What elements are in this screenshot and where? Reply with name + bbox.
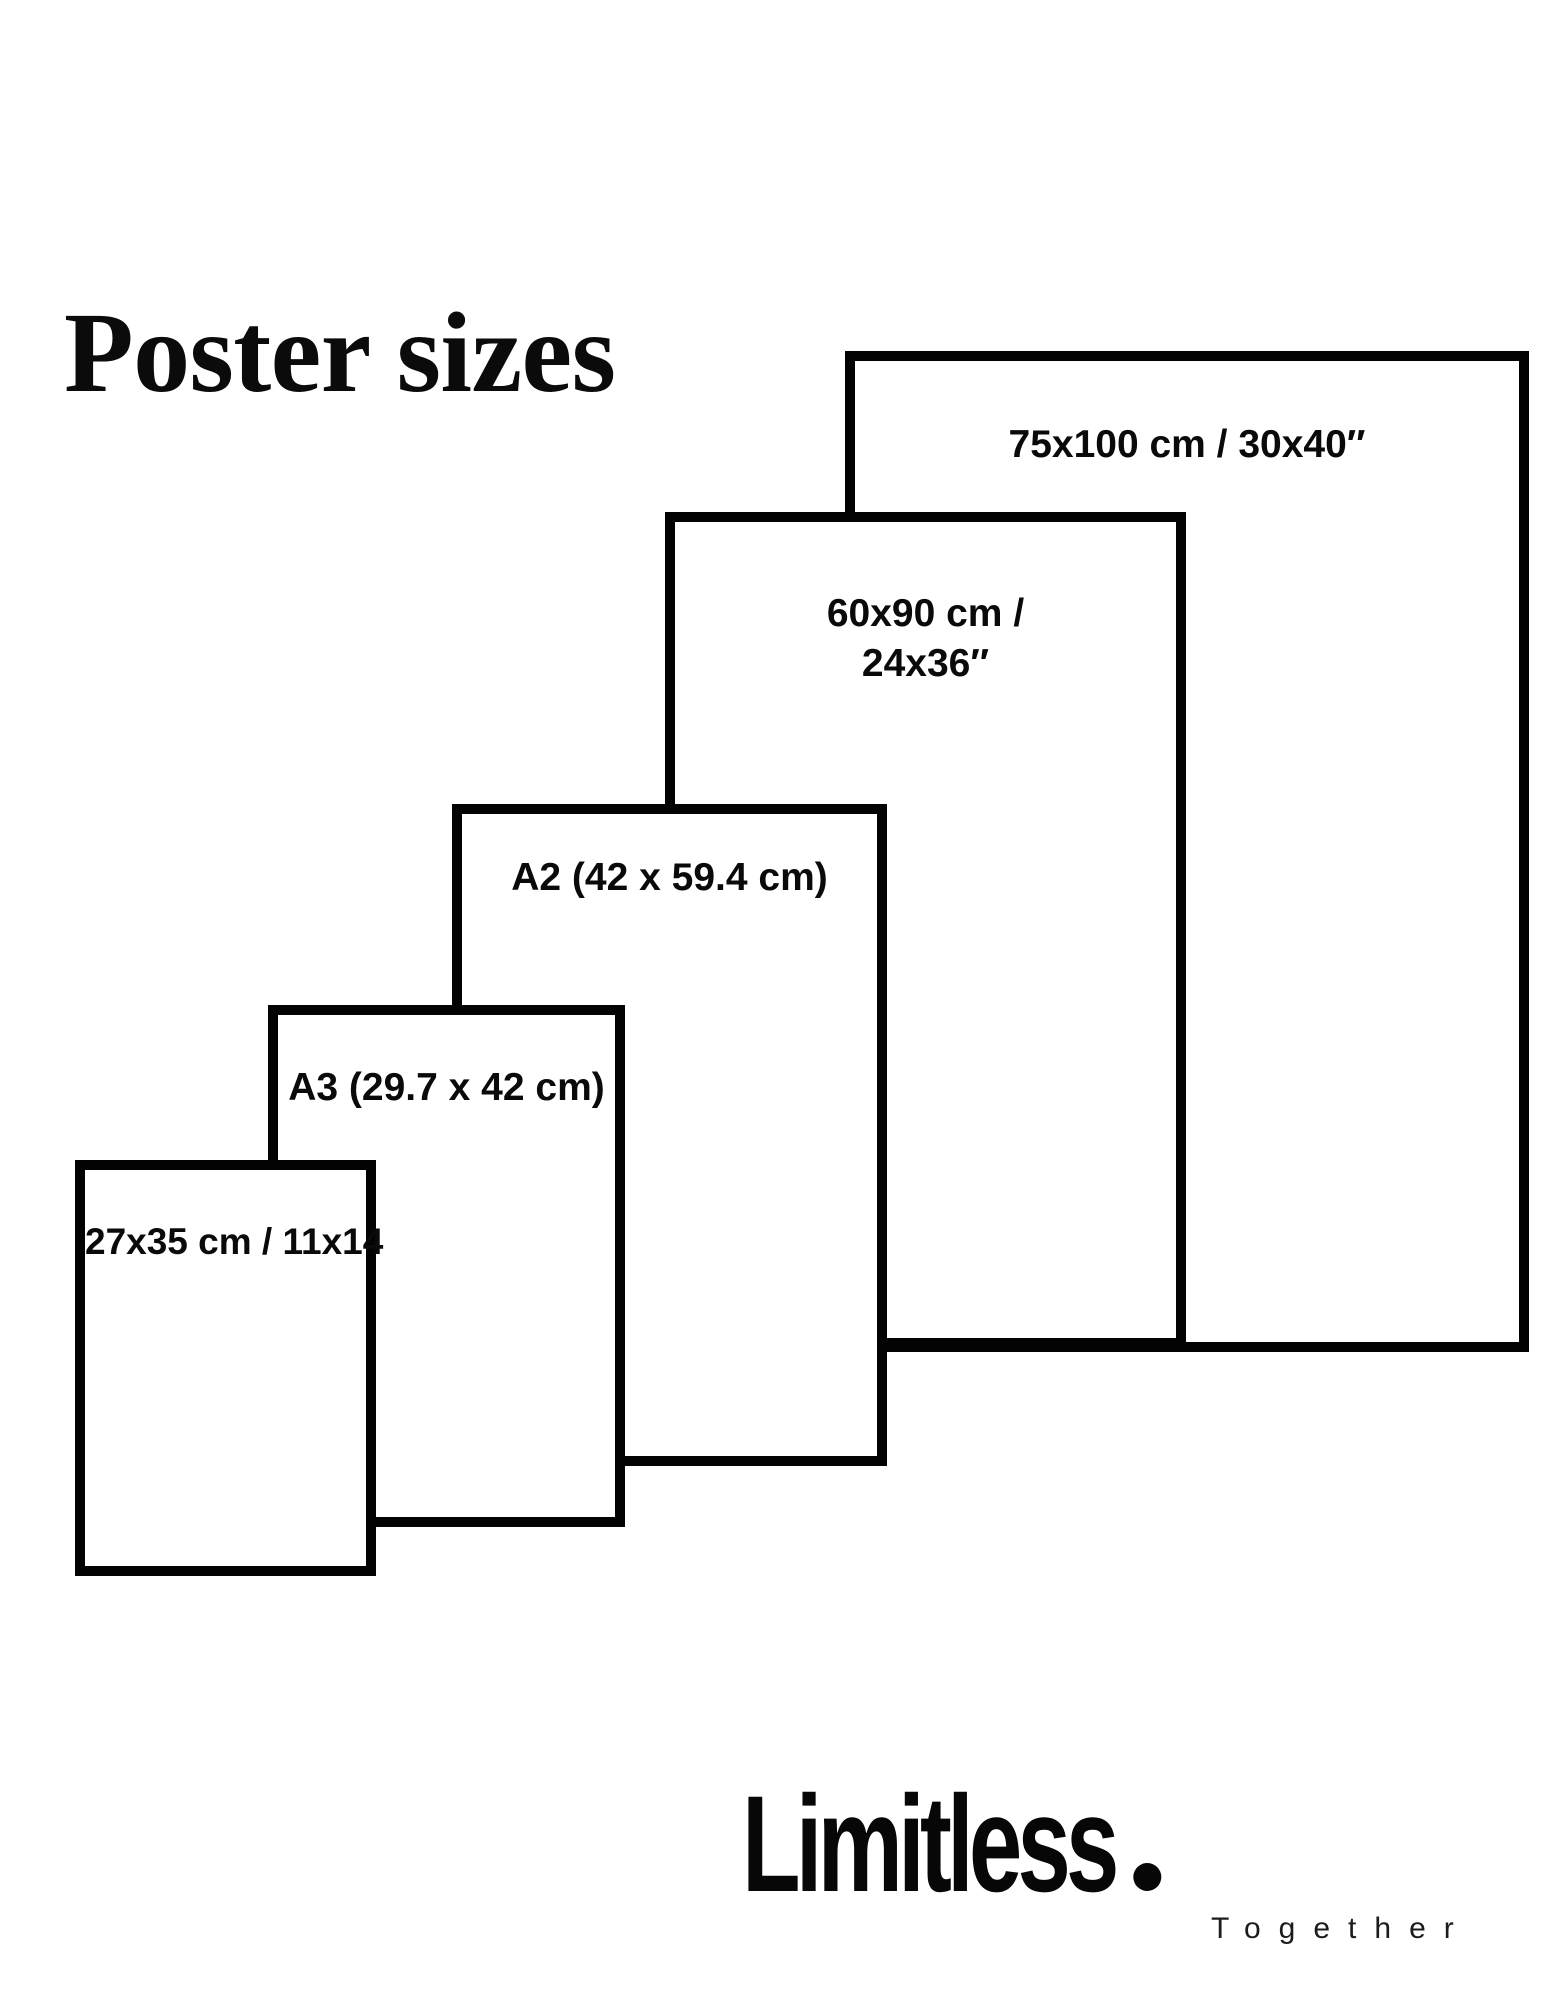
logo-period-dot	[1133, 1863, 1161, 1891]
brand-logo: Limitless	[742, 1776, 1161, 1913]
poster-rect-27x35: 27x35 cm / 11x14	[75, 1160, 376, 1576]
poster-label-75x100: 75x100 cm / 30x40″	[855, 422, 1519, 468]
poster-label-60x90-line2: 24x36″	[675, 639, 1176, 689]
poster-label-27x35: 27x35 cm / 11x14	[85, 1220, 366, 1264]
poster-size-chart: Poster sizes 75x100 cm / 30x40″ 60x90 cm…	[0, 0, 1545, 2000]
page-title: Poster sizes	[64, 296, 615, 410]
poster-label-60x90: 60x90 cm / 24x36″	[675, 589, 1176, 689]
poster-label-60x90-line1: 60x90 cm /	[675, 589, 1176, 639]
brand-tagline: Together	[1211, 1914, 1472, 1944]
brand-wordmark: Limitless	[742, 1768, 1115, 1921]
poster-label-a2: A2 (42 x 59.4 cm)	[462, 855, 877, 901]
poster-label-a3: A3 (29.7 x 42 cm)	[278, 1065, 615, 1111]
